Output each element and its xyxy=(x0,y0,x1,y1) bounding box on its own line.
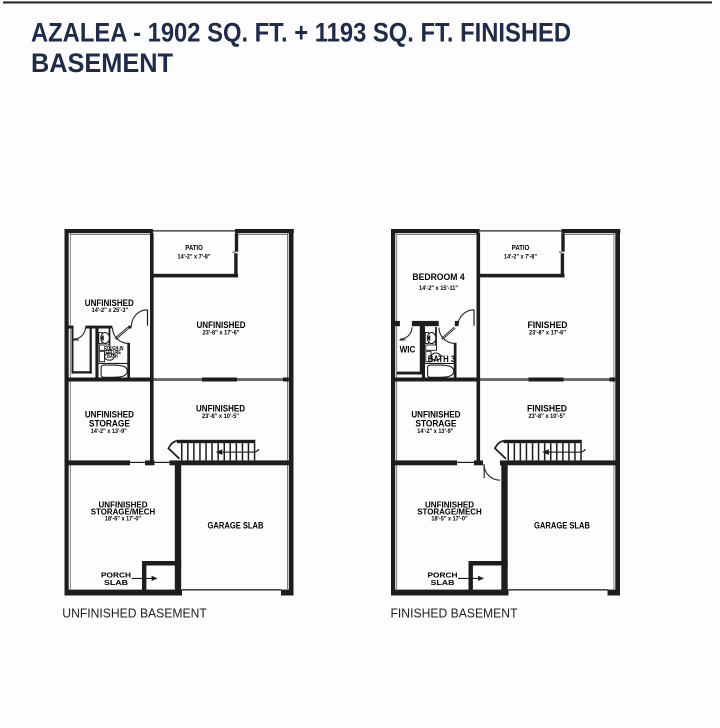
svg-text:SLAB: SLAB xyxy=(104,578,129,587)
svg-text:BATH: BATH xyxy=(107,354,118,360)
svg-text:23'-8" x 17'-6": 23'-8" x 17'-6" xyxy=(203,329,240,336)
svg-text:14'-2" x 7'-8": 14'-2" x 7'-8" xyxy=(504,253,537,260)
svg-text:AZALEA - 1902 SQ. FT. + 1193 S: AZALEA - 1902 SQ. FT. + 1193 SQ. FT. FIN… xyxy=(31,17,571,47)
svg-text:PATIO: PATIO xyxy=(512,243,530,252)
svg-text:23'-8" x 10'-5": 23'-8" x 10'-5" xyxy=(202,413,239,420)
svg-text:FINISHED BASEMENT: FINISHED BASEMENT xyxy=(391,605,518,620)
svg-text:PATIO: PATIO xyxy=(185,243,203,252)
svg-text:GARAGE SLAB: GARAGE SLAB xyxy=(534,520,590,531)
svg-text:GARAGE SLAB: GARAGE SLAB xyxy=(208,520,264,531)
svg-text:23'-8" x 10'-5": 23'-8" x 10'-5" xyxy=(529,413,566,420)
svg-text:14'-2" x 13'-9": 14'-2" x 13'-9" xyxy=(91,428,127,435)
svg-text:BASEMENT: BASEMENT xyxy=(31,48,173,78)
svg-text:14'-2" x 7'-8": 14'-2" x 7'-8" xyxy=(178,253,211,260)
svg-text:SLAB: SLAB xyxy=(431,578,456,587)
svg-text:18'-5" x 17'-0": 18'-5" x 17'-0" xyxy=(431,515,467,522)
svg-text:14'-2" x 13'-9": 14'-2" x 13'-9" xyxy=(417,428,453,435)
svg-text:18'-6" x 17'-0": 18'-6" x 17'-0" xyxy=(105,515,141,522)
svg-text:23'-8" x 17'-6": 23'-8" x 17'-6" xyxy=(529,329,566,336)
svg-text:BEDROOM 4: BEDROOM 4 xyxy=(412,272,465,283)
svg-text:14'-2" x 15'-11": 14'-2" x 15'-11" xyxy=(419,285,458,292)
svg-text:WIC: WIC xyxy=(400,345,416,356)
svg-text:14'-2" x 25'-3": 14'-2" x 25'-3" xyxy=(92,307,129,314)
svg-text:UNFINISHED BASEMENT: UNFINISHED BASEMENT xyxy=(62,606,207,621)
svg-text:BATH 3: BATH 3 xyxy=(428,354,456,365)
